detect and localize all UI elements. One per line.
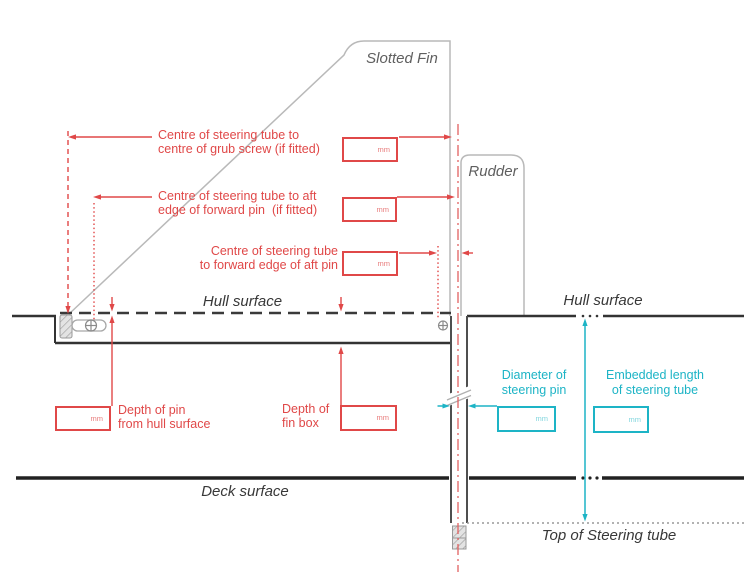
hull-section-right <box>467 315 744 318</box>
depth-of-fin-box-value-box[interactable]: mm <box>340 405 397 431</box>
dim-depth-of-pin <box>109 297 114 406</box>
hull-surface-label-right: Hull surface <box>548 292 658 309</box>
rudder-label: Rudder <box>463 163 523 180</box>
dim-aft-pin <box>399 246 473 318</box>
fin-measurement-diagram: Slotted Fin Rudder Hull surface Hull sur… <box>0 0 750 574</box>
steering-tube <box>451 316 467 523</box>
dim-aft-pin-label: Centre of steering tube to forward edge … <box>146 245 338 272</box>
steering-pin-diameter-label: Diameter of steering pin <box>488 368 580 397</box>
aft-pin-value-box[interactable]: mm <box>342 251 398 276</box>
mm-unit-label: mm <box>91 415 104 423</box>
forward-pin-hatched <box>60 315 72 338</box>
forward-pin-value-box[interactable]: mm <box>342 197 397 222</box>
dim-forward-pin-label: Centre of steering tube to aft edge of f… <box>158 190 348 217</box>
steering-pin-diameter-value-box[interactable]: mm <box>497 406 556 432</box>
grub-screw-value-box[interactable]: mm <box>342 137 398 162</box>
embedded-length-value-box[interactable]: mm <box>593 406 649 433</box>
dim-depth-of-fin-box <box>338 297 343 405</box>
top-of-steering-tube-label: Top of Steering tube <box>530 527 688 544</box>
mm-unit-label: mm <box>377 206 390 214</box>
depth-of-pin-value-box[interactable]: mm <box>55 406 111 431</box>
deck-surface-line <box>16 476 744 479</box>
grub-screw-symbol-left <box>86 320 97 331</box>
hull-surface-label-left: Hull surface <box>185 293 300 310</box>
diagram-geometry <box>0 0 750 574</box>
aft-pin-symbol <box>439 321 448 330</box>
dim-grub-screw-label: Centre of steering tube to centre of gru… <box>158 129 348 156</box>
mm-unit-label: mm <box>378 146 391 154</box>
mm-unit-label: mm <box>629 416 642 424</box>
mm-unit-label: mm <box>536 415 549 423</box>
mm-unit-label: mm <box>377 414 390 422</box>
depth-of-fin-box-label: Depth of fin box <box>282 403 342 430</box>
depth-of-pin-label: Depth of pin from hull surface <box>118 404 243 431</box>
dim-embedded-length <box>582 319 587 522</box>
embedded-length-label: Embedded length of steering tube <box>596 368 714 397</box>
mm-unit-label: mm <box>378 260 391 268</box>
slotted-fin-label: Slotted Fin <box>352 50 452 67</box>
deck-surface-label: Deck surface <box>190 483 300 500</box>
tube-break-symbol <box>446 385 472 407</box>
